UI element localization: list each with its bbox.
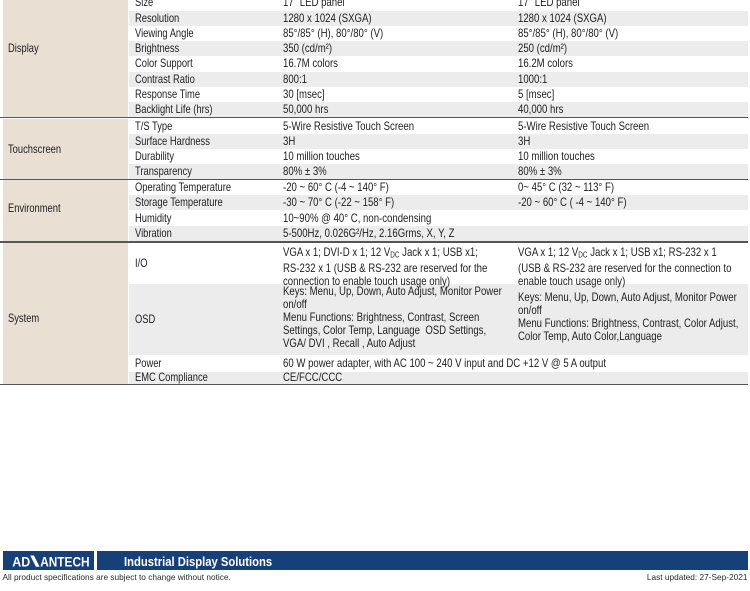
svg-text:ANTECH: ANTECH bbox=[40, 553, 89, 569]
svg-text:AD: AD bbox=[12, 553, 30, 569]
